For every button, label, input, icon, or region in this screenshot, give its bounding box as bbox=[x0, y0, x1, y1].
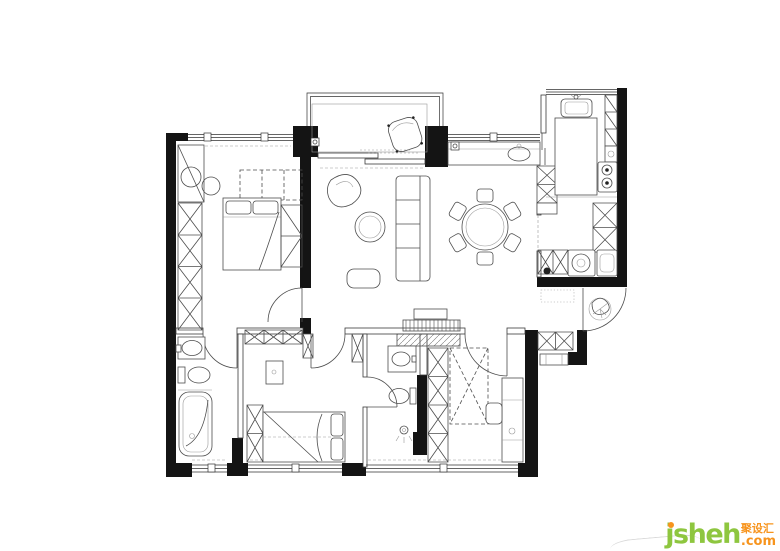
wardrobe-icon bbox=[247, 405, 263, 462]
toilet-icon bbox=[188, 367, 210, 383]
desk-icon bbox=[502, 378, 523, 462]
bedroom-3 bbox=[428, 348, 523, 462]
sofa-icon bbox=[396, 176, 430, 281]
watermark-logo: jsheh 聚设汇 .com bbox=[665, 521, 776, 548]
master-bathroom bbox=[176, 337, 212, 456]
kitchen bbox=[546, 95, 617, 197]
floor-drain-icon bbox=[544, 268, 551, 275]
watermark-stack: 聚设汇 .com bbox=[741, 521, 776, 548]
watermark-brand: jsheh bbox=[665, 521, 740, 548]
wardrobe-icon bbox=[428, 348, 448, 462]
kitchen-island-icon bbox=[555, 118, 597, 195]
master-bedroom bbox=[178, 145, 302, 330]
wardrobe-icon bbox=[178, 203, 202, 330]
living-dining-room bbox=[327, 142, 557, 331]
tv-console-icon bbox=[403, 320, 460, 331]
chair-icon bbox=[486, 403, 502, 424]
bedroom-2 bbox=[245, 330, 363, 462]
tv-icon bbox=[414, 309, 447, 319]
watermark-brand-text: jsheh bbox=[665, 519, 740, 550]
lounge-chair-icon bbox=[386, 115, 424, 154]
coffee-table-icon bbox=[347, 269, 380, 288]
plant-icon bbox=[589, 298, 611, 320]
floor-plan-page: jsheh 聚设汇 .com bbox=[0, 0, 780, 551]
shoe-cabinet-icon bbox=[538, 332, 573, 350]
watermark-tld: .com bbox=[741, 535, 776, 548]
stove-icon bbox=[598, 162, 617, 192]
armchair-icon bbox=[327, 174, 361, 206]
washing-machine-icon bbox=[568, 250, 595, 276]
toilet-icon bbox=[389, 389, 409, 404]
watermark-tld-text: com bbox=[746, 534, 776, 549]
bathtub-icon bbox=[179, 392, 212, 456]
hall-cabinet-icon bbox=[537, 166, 557, 203]
pouf-icon bbox=[355, 212, 385, 242]
dining-table-icon bbox=[448, 189, 522, 265]
shower-icon bbox=[400, 426, 408, 434]
floor-plan-drawing bbox=[0, 0, 780, 551]
